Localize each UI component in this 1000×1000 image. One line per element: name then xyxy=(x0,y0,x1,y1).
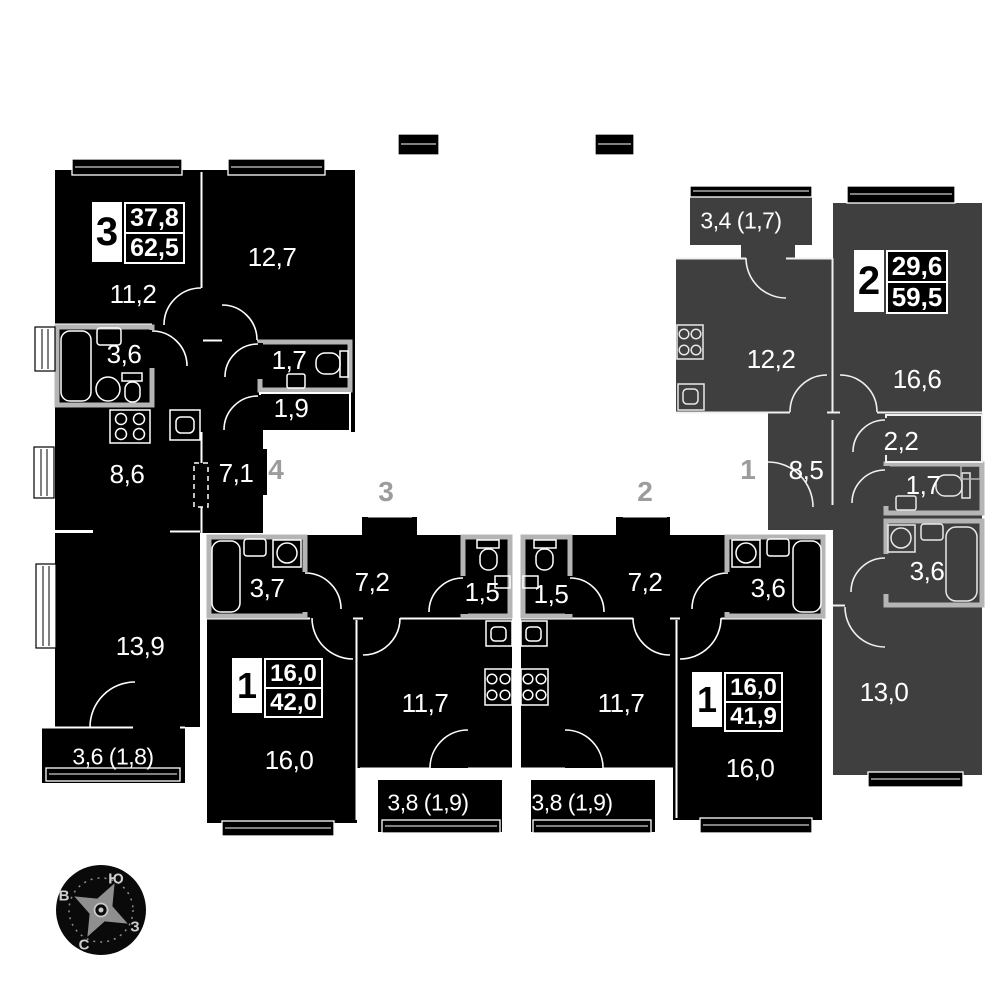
apartment-type-badge: 1 xyxy=(232,658,262,713)
entrance-number: 3 xyxy=(378,476,394,508)
entry-door-leaf xyxy=(263,449,267,495)
room-label: 12,2 xyxy=(747,346,796,372)
apartment-type-badge: 2 xyxy=(854,250,884,312)
room-label: 3,8 (1,9) xyxy=(387,792,468,815)
compass-east-label: В xyxy=(59,888,70,905)
living-area-value: 29,6 xyxy=(886,250,948,283)
living-area-value: 37,8 xyxy=(124,202,185,234)
room-label: 1,5 xyxy=(534,581,569,607)
room-label: 8,6 xyxy=(110,461,145,487)
room-label: 8,5 xyxy=(789,457,824,483)
room-label: 3,6 xyxy=(751,575,786,601)
room-label: 1,9 xyxy=(274,395,309,421)
room-label: 3,7 xyxy=(250,575,285,601)
entrance-number: 1 xyxy=(740,454,756,486)
room-label: 3,6 xyxy=(107,341,142,367)
apartment-plaque-2room: 2 29,6 59,5 xyxy=(854,250,948,314)
room-label: 11,7 xyxy=(402,690,449,716)
room-label: 7,2 xyxy=(355,569,390,595)
compass-rose xyxy=(56,865,146,955)
room-label: 16,6 xyxy=(893,366,942,392)
room-label: 3,8 (1,9) xyxy=(531,792,612,815)
living-area-value: 16,0 xyxy=(264,658,323,689)
apartment-plaque-1room-right: 1 16,0 41,9 xyxy=(692,672,783,732)
vent-shaft xyxy=(194,463,208,507)
room-label: 13,0 xyxy=(860,679,909,705)
room-label: 12,7 xyxy=(248,244,297,270)
room-label: 13,9 xyxy=(116,633,165,659)
compass-north-label: С xyxy=(79,937,90,954)
room-label: 2,2 xyxy=(884,428,919,454)
room-label: 7,1 xyxy=(219,460,254,486)
floor-plan: 11,2 12,7 3,6 1,7 1,9 8,6 7,1 13,9 3,6 (… xyxy=(0,0,1000,1000)
total-area-value: 41,9 xyxy=(724,701,783,732)
room-label: 1,7 xyxy=(906,472,941,498)
total-area-value: 62,5 xyxy=(124,232,185,264)
room-label: 3,6 xyxy=(910,558,945,584)
room-label: 1,5 xyxy=(465,579,500,605)
room-label: 16,0 xyxy=(265,747,314,773)
entrance-number: 4 xyxy=(268,454,284,486)
entrance-number: 2 xyxy=(637,476,653,508)
apartment-plaque-1room-left: 1 16,0 42,0 xyxy=(232,658,323,718)
side-windows xyxy=(34,327,56,648)
room-label: 11,2 xyxy=(110,281,157,307)
room-label: 3,6 (1,8) xyxy=(72,746,153,769)
apartment-plaque-3room: 3 37,8 62,5 xyxy=(92,202,185,264)
total-area-value: 42,0 xyxy=(264,687,323,718)
floor-plan-drawing xyxy=(0,0,1000,1000)
compass-south-label: Ю xyxy=(108,871,123,888)
living-area-value: 16,0 xyxy=(724,672,783,703)
room-label: 3,4 (1,7) xyxy=(700,210,781,233)
room-label: 11,7 xyxy=(598,690,645,716)
room-label: 1,7 xyxy=(272,347,307,373)
apartment-type-badge: 3 xyxy=(92,202,122,262)
compass-west-label: З xyxy=(130,919,139,936)
room-label: 7,2 xyxy=(628,569,663,595)
apartment-type-badge: 1 xyxy=(692,672,722,727)
room-label: 16,0 xyxy=(726,755,775,781)
total-area-value: 59,5 xyxy=(886,281,948,314)
